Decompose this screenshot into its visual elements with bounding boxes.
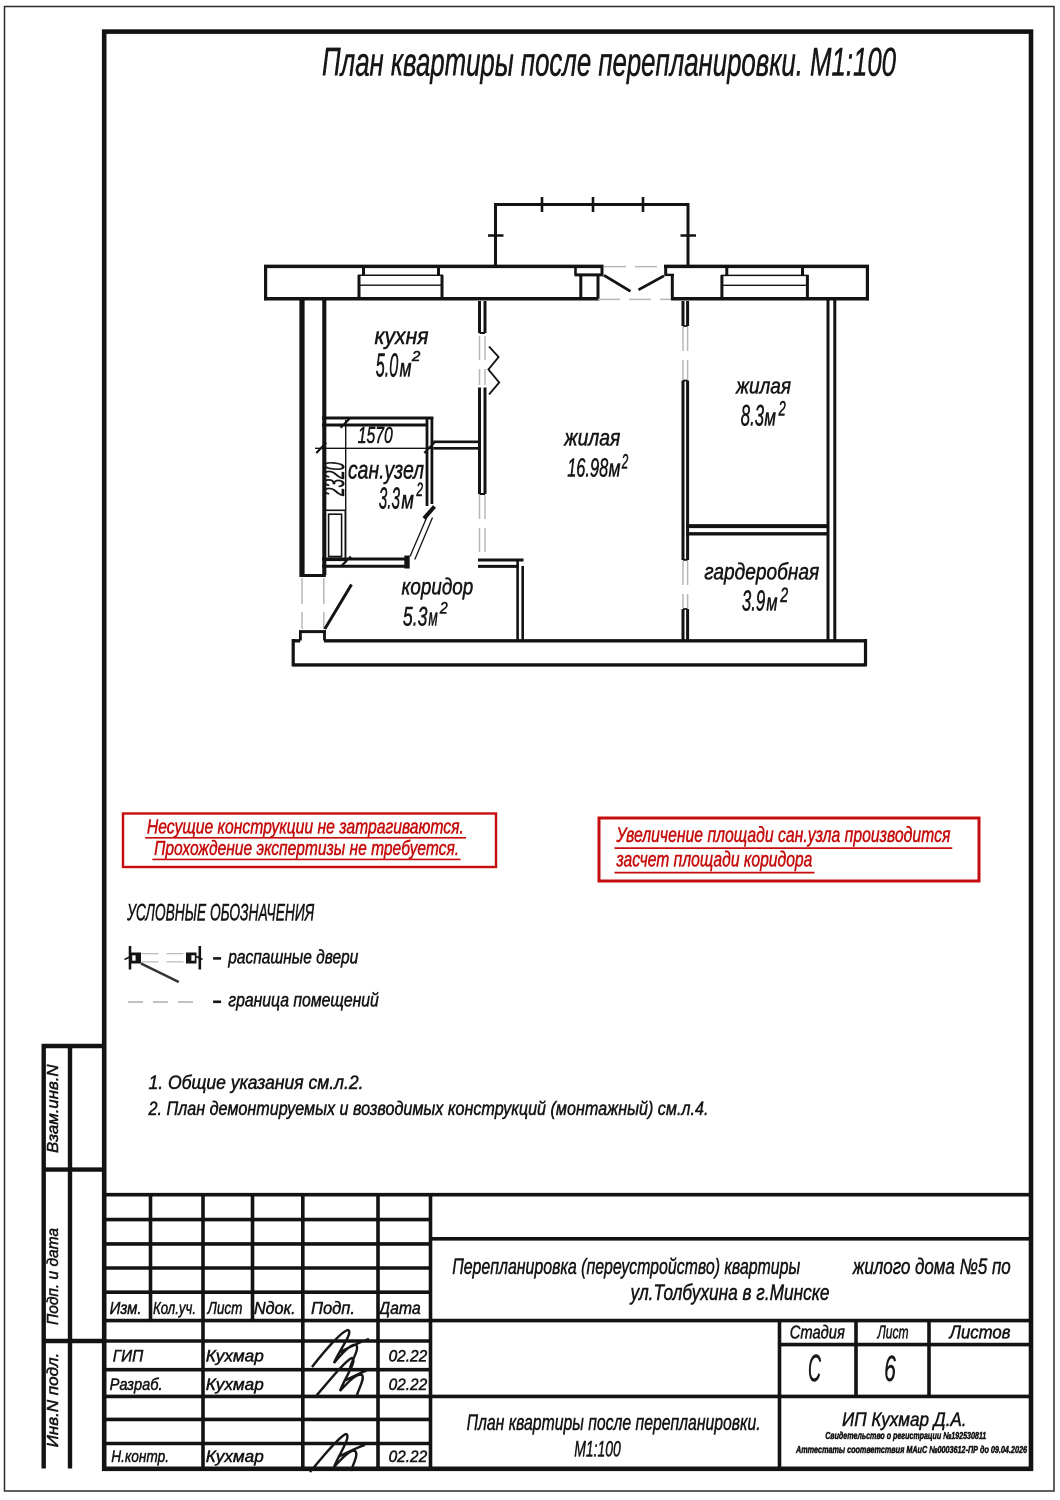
svg-text:Инв.N подл.: Инв.N подл. [45, 1353, 62, 1448]
svg-text:2: 2 [778, 398, 786, 421]
svg-text:Разраб.: Разраб. [110, 1375, 163, 1394]
svg-text:Листов: Листов [949, 1323, 1011, 1343]
svg-text:м: м [609, 456, 621, 483]
svg-text:Аттестаты соответствия МАиС №: Аттестаты соответствия МАиС №0003612-ПР … [795, 1445, 1027, 1456]
svg-text:Несущие конструкции не затраги: Несущие конструкции не затрагиваются. [147, 815, 464, 838]
svg-text:5.0: 5.0 [376, 346, 399, 383]
svg-text:коридор: коридор [402, 574, 474, 600]
svg-text:2: 2 [416, 480, 423, 501]
svg-text:жилая: жилая [563, 425, 620, 451]
svg-text:Свидетельство о регистрации №1: Свидетельство о регистрации №192530811 [825, 1431, 986, 1442]
svg-text:Кухмар: Кухмар [206, 1375, 264, 1394]
svg-text:Подп. и дата: Подп. и дата [45, 1228, 62, 1325]
svg-text:Кухмар: Кухмар [206, 1347, 264, 1366]
svg-text:Увеличение площади сан.узла пр: Увеличение площади сан.узла производится [616, 823, 951, 847]
svg-text:Дата: Дата [377, 1298, 421, 1318]
svg-text:жилого дома №5 по: жилого дома №5 по [852, 1254, 1011, 1279]
svg-text:Стадия: Стадия [790, 1323, 845, 1343]
svg-text:м: м [401, 487, 414, 515]
svg-text:План квартиры после перепланир: План квартиры после перепланировки. М1:1… [322, 41, 896, 85]
svg-text:распашные двери: распашные двери [227, 947, 358, 968]
svg-text:2: 2 [621, 451, 628, 474]
svg-text:2. План демонтируемых и возво: 2. План демонтируемых и возводимых конст… [148, 1098, 709, 1120]
svg-text:Лист: Лист [207, 1298, 243, 1318]
svg-text:3.3: 3.3 [379, 481, 400, 516]
svg-text:Кухмар: Кухмар [206, 1447, 264, 1466]
svg-text:Изм.: Изм. [110, 1298, 142, 1318]
svg-text:Прохождение экспертизы не треб: Прохождение экспертизы не требуется. [154, 837, 459, 860]
svg-text:2: 2 [411, 348, 421, 365]
svg-text:02.22: 02.22 [389, 1375, 428, 1394]
svg-text:02.22: 02.22 [389, 1447, 428, 1466]
svg-text:ГИП: ГИП [113, 1347, 144, 1366]
svg-text:С: С [808, 1348, 821, 1390]
svg-text:3.9: 3.9 [742, 585, 765, 617]
svg-text:План квартиры после перепланир: План квартиры после перепланировки. [467, 1410, 761, 1435]
svg-text:8.3: 8.3 [741, 399, 764, 432]
svg-text:М1:100: М1:100 [574, 1437, 621, 1462]
svg-text:засчет площади коридора: засчет площади коридора [616, 848, 813, 872]
svg-text:02.22: 02.22 [389, 1347, 428, 1366]
svg-text:16.98: 16.98 [567, 453, 608, 483]
svg-text:жилая: жилая [735, 374, 791, 399]
svg-text:1570: 1570 [358, 422, 393, 448]
svg-text:ИП Кухмар Д.А.: ИП Кухмар Д.А. [842, 1410, 967, 1431]
svg-text:кухня: кухня [375, 323, 429, 349]
svg-text:6: 6 [884, 1348, 896, 1389]
svg-text:2: 2 [780, 584, 789, 607]
svg-text:м: м [400, 354, 412, 382]
svg-text:ул.Толбухина в г.Минске: ул.Толбухина в г.Минске [629, 1280, 830, 1305]
svg-text:граница помещений: граница помещений [228, 990, 379, 1011]
svg-text:1. Общие указания см.л.2.: 1. Общие указания см.л.2. [149, 1072, 364, 1094]
svg-text:2: 2 [439, 598, 448, 617]
svg-text:УСЛОВНЫЕ ОБОЗНАЧЕНИЯ: УСЛОВНЫЕ ОБОЗНАЧЕНИЯ [127, 900, 315, 927]
svg-text:5.3: 5.3 [403, 602, 428, 632]
svg-text:Взам.инв.N: Взам.инв.N [45, 1064, 62, 1153]
svg-text:м: м [766, 589, 777, 616]
svg-text:2320: 2320 [319, 462, 351, 497]
svg-text:м: м [764, 404, 776, 431]
svg-text:гардеробная: гардеробная [704, 558, 819, 584]
svg-text:Лист: Лист [877, 1323, 909, 1343]
svg-text:Н.контр.: Н.контр. [111, 1447, 169, 1466]
svg-text:Перепланировка (переустройство: Перепланировка (переустройство) квартиры [452, 1254, 800, 1279]
svg-text:Nдок.: Nдок. [254, 1298, 296, 1318]
svg-text:м: м [428, 605, 437, 632]
svg-text:Кол.уч.: Кол.уч. [153, 1298, 196, 1318]
svg-text:Подп.: Подп. [311, 1298, 355, 1318]
